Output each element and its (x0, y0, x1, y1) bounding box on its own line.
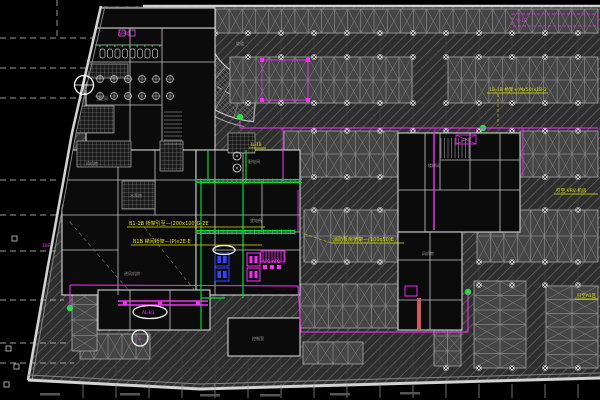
column-marker (312, 55, 317, 60)
column-marker (576, 260, 581, 265)
column-marker (576, 55, 581, 60)
dimension-smudge (40, 393, 60, 396)
column-marker (543, 31, 548, 36)
route-node (158, 301, 162, 305)
column-marker (444, 101, 449, 106)
column-marker (576, 31, 581, 36)
column-marker (543, 175, 548, 180)
column-marker (477, 283, 482, 288)
column-marker (510, 283, 515, 288)
drawing-layers: B1-1B 桥架引至—(200x100)G-2EB1B 梯间桥架—(P)x2E-… (0, 0, 600, 400)
column-marker (312, 208, 317, 213)
column-marker (576, 283, 581, 288)
column-marker (312, 129, 317, 134)
column-marker (576, 129, 581, 134)
pump-center (236, 155, 238, 157)
riser-strip (417, 298, 421, 330)
fixture-tick (99, 45, 101, 47)
fixture-tick (152, 45, 154, 47)
callout-text: B1B 梯间桥架—(P)x2E-E (133, 238, 191, 245)
device-square (270, 265, 274, 269)
parking-stall-band (520, 131, 598, 177)
column-marker (279, 55, 284, 60)
column-marker (477, 101, 482, 106)
equipment-tag: 1 (139, 336, 142, 342)
callout-text: 1L-1B (250, 142, 262, 147)
column-marker (543, 55, 548, 60)
callout-text: 引至 VRV 机房 (556, 187, 587, 194)
fixture-tick (114, 45, 116, 47)
junction-dot (237, 114, 243, 120)
parking-stall-band (230, 57, 412, 103)
route-node (306, 58, 310, 62)
fixture-tick (107, 45, 109, 47)
column-marker (345, 208, 350, 213)
column-marker (477, 31, 482, 36)
room-label: 风机房 (86, 160, 98, 166)
column-marker (510, 366, 515, 371)
column-marker (345, 175, 350, 180)
fixture-tick (129, 45, 131, 47)
equipment-tag: YJ-1B (515, 18, 527, 24)
callout-text: 1B-1B 桥架+(Mx50)x1B-2 (489, 86, 547, 93)
column-marker (477, 55, 482, 60)
column-marker (411, 55, 416, 60)
room-label: 风机房 (422, 250, 434, 256)
column-marker (444, 366, 449, 371)
column-marker (246, 55, 251, 60)
parking-stall-band (284, 131, 398, 177)
column-marker (543, 366, 548, 371)
route-node (306, 98, 310, 102)
column-marker (411, 101, 416, 106)
column-marker (477, 260, 482, 265)
column-marker (576, 101, 581, 106)
column-marker (510, 31, 515, 36)
dimension-smudge (400, 392, 420, 395)
panel-unit (218, 271, 222, 278)
device-square (277, 265, 281, 269)
room-label: 坡道 (236, 40, 244, 46)
column-marker (444, 31, 449, 36)
equipment-tag: AP-B1 (118, 31, 131, 37)
parking-stall-band (303, 342, 363, 364)
callout-text: 引至A1区 (577, 292, 597, 299)
tiled-room-grid (88, 64, 128, 78)
column-marker (378, 129, 383, 134)
callout-text: B1-1B 桥架引至—(200x100)G-2E (129, 220, 209, 227)
room-label: 水泵房 (130, 192, 142, 198)
column-marker (312, 101, 317, 106)
column-marker (312, 175, 317, 180)
column-marker (378, 55, 383, 60)
dimension-smudge (200, 394, 220, 397)
column-marker (411, 31, 416, 36)
room-block (98, 290, 210, 330)
panel-unit (255, 271, 258, 278)
column-marker (378, 208, 383, 213)
column-marker (345, 55, 350, 60)
floor-plan-canvas: B1-1B 桥架引至—(200x100)G-2EB1B 梯间桥架—(P)x2E-… (0, 0, 600, 400)
column-marker (345, 129, 350, 134)
parking-stall-band (448, 57, 598, 103)
column-marker (543, 283, 548, 288)
equipment-tag: AP1 AP2 (262, 259, 280, 265)
panel-unit (223, 271, 227, 278)
room-label: 进风机房 (124, 270, 140, 276)
route-node (123, 301, 127, 305)
column-marker (510, 55, 515, 60)
column-marker (510, 260, 515, 265)
panel-unit (223, 256, 227, 263)
fixture-tick (159, 45, 161, 47)
column-marker (312, 260, 317, 265)
fixture-tick (144, 45, 146, 47)
panel-unit (255, 256, 258, 263)
column-marker (444, 55, 449, 60)
room-block (95, 8, 215, 28)
column-marker (576, 175, 581, 180)
column-marker (543, 129, 548, 134)
column-marker (510, 101, 515, 106)
pump-center (236, 167, 238, 169)
panel-unit (218, 256, 222, 263)
cad-viewport[interactable]: B1-1B 桥架引至—(200x100)G-2EB1B 梯间桥架—(P)x2E-… (0, 0, 600, 400)
parking-stall-band (474, 281, 526, 368)
column-marker (378, 260, 383, 265)
column-marker (345, 260, 350, 265)
room-block (196, 150, 300, 295)
parking-stall-band (72, 289, 97, 351)
room-label: 配电间 (248, 158, 260, 164)
route-node (260, 58, 264, 62)
room-label: 卫生间 (96, 95, 108, 101)
room-block (228, 318, 300, 356)
fixture-tick (122, 45, 124, 47)
parking-stall-band (304, 210, 398, 262)
room-label: 控制室 (252, 335, 264, 341)
panel-unit (250, 271, 253, 278)
column-marker (279, 31, 284, 36)
column-marker (312, 31, 317, 36)
panel-unit (250, 256, 253, 263)
column-marker (246, 31, 251, 36)
column-marker (543, 208, 548, 213)
column-marker (279, 101, 284, 106)
column-marker (246, 101, 251, 106)
dimension-smudge (330, 393, 350, 396)
column-marker (378, 175, 383, 180)
column-marker (576, 208, 581, 213)
room-block (398, 133, 520, 232)
column-marker (576, 366, 581, 371)
parking-stall-band (150, 9, 598, 33)
column-marker (477, 366, 482, 371)
room-label: 变电所 (250, 217, 262, 223)
callout-text: 消防泵房桥架—(100x50)E (333, 236, 394, 243)
column-marker (543, 260, 548, 265)
route-node (196, 301, 200, 305)
route-node (260, 98, 264, 102)
equipment-tag: AL-B1 (142, 310, 155, 316)
column-marker (543, 101, 548, 106)
device-square (263, 265, 267, 269)
dimension-smudge (120, 393, 140, 396)
column-marker (378, 31, 383, 36)
parking-stall-band (300, 284, 400, 328)
column-marker (345, 31, 350, 36)
column-marker (378, 101, 383, 106)
equipment-tag: 1BF (42, 243, 51, 249)
column-marker (345, 101, 350, 106)
tiled-room-grid (160, 141, 183, 171)
room-label: 楼梯间 (428, 162, 440, 168)
dimension-smudge (260, 394, 280, 397)
fixture-tick (137, 45, 139, 47)
